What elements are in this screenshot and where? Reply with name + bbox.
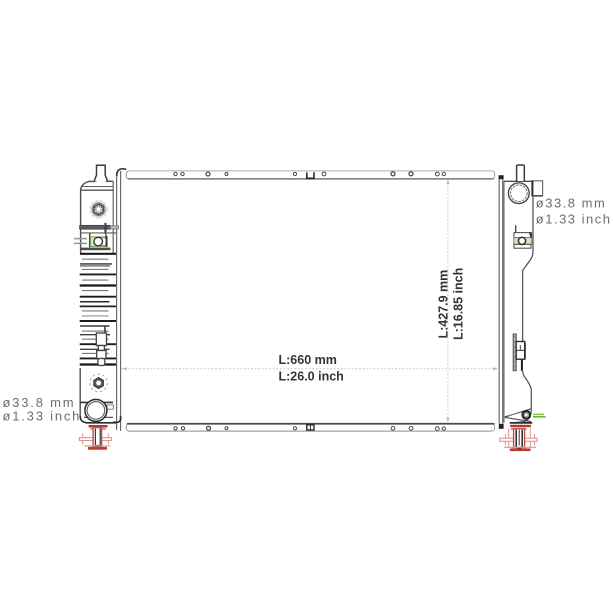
svg-text:L:427.9 mm: L:427.9 mm [437,270,451,339]
svg-text:ø33.8 mm: ø33.8 mm [536,196,607,211]
svg-text:L:16.85 inch: L:16.85 inch [452,268,466,340]
svg-text:L:26.0 inch: L:26.0 inch [279,370,344,384]
svg-text:L:660 mm: L:660 mm [279,353,337,367]
svg-text:ø1.33 inch: ø1.33 inch [3,409,82,424]
svg-text:ø1.33 inch: ø1.33 inch [536,211,612,226]
